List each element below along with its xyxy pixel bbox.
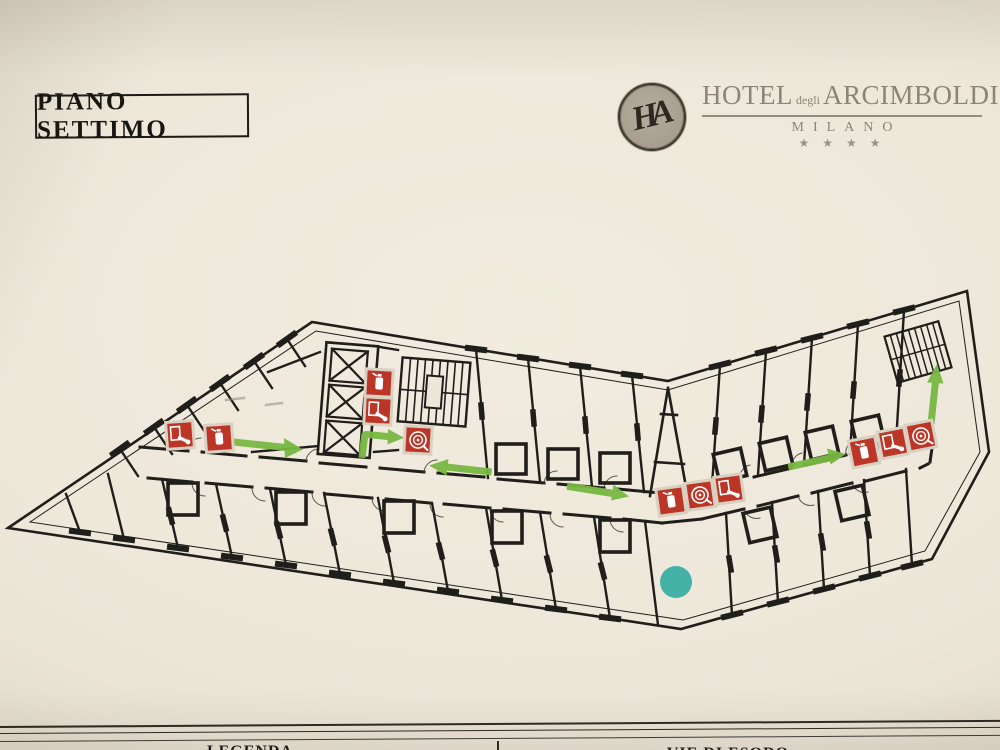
arrow-elbow-core [359,429,405,458]
hose-reel-icon [683,478,717,512]
fire-hydrant-icon [164,419,196,451]
fire-hydrant-icon [362,395,394,427]
fire-hydrant-icon [712,472,746,506]
safety-icons [164,367,939,518]
central-stairs [398,357,471,426]
bathroom-boxes [168,415,885,552]
right-stairs [884,321,951,383]
floor-plan [0,0,1000,750]
arrow-right-mid-corridor [567,483,630,501]
legend-left-header: LEGENDA [207,743,293,750]
building-bend-truss [650,388,688,498]
arrow-right-right-wing [788,449,847,471]
you-are-here-dot [660,566,692,598]
fire-extinguisher-icon [363,367,395,399]
hose-reel-icon [402,424,434,456]
fire-extinguisher-icon [654,484,688,518]
legend-right-header: VIE DI ESODO [667,745,789,750]
fire-extinguisher-icon [846,434,881,469]
hose-reel-icon [903,418,938,453]
evacuation-plan-photo: PIANO SETTIMO HA HOTELdegliARCIMBOLDI MI… [0,0,1000,750]
fire-extinguisher-icon [203,422,235,454]
legend-column-divider [497,741,499,750]
